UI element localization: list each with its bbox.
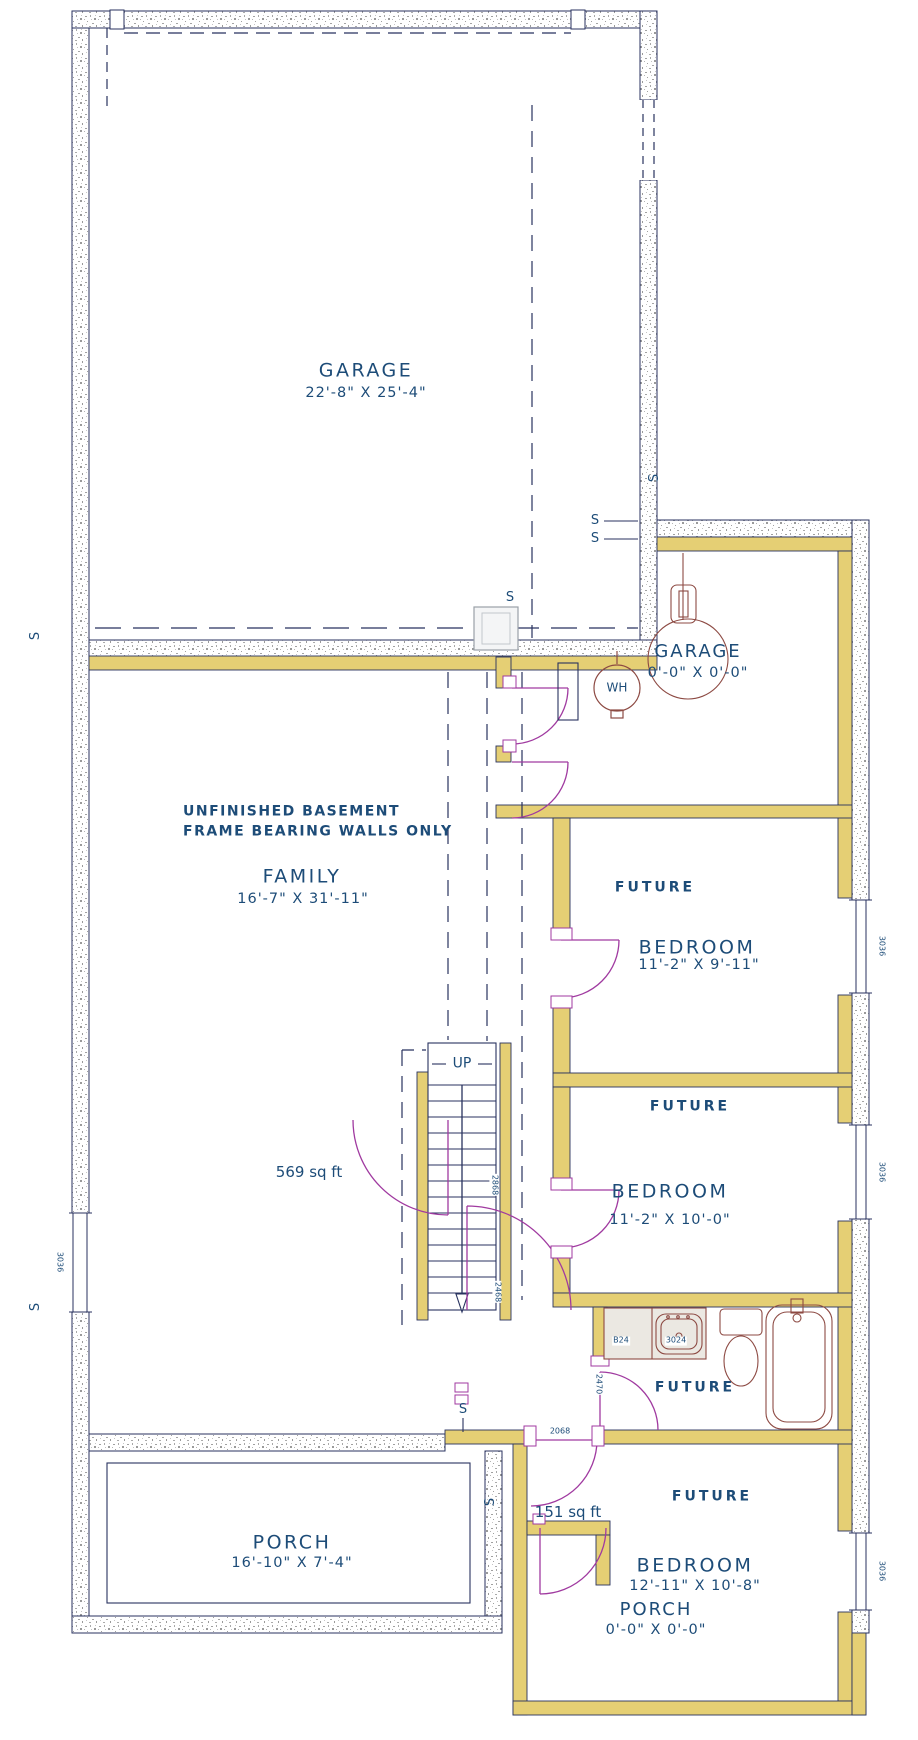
furnace bbox=[474, 607, 518, 650]
room-label-family: FAMILY bbox=[263, 867, 342, 888]
bathroom-fixtures bbox=[604, 1299, 832, 1429]
room-dims-bedroom2: 11'-2" X 10'-0" bbox=[609, 1213, 730, 1229]
floor-plan-drawing bbox=[0, 0, 918, 1740]
room-label-bedroom3: BEDROOM bbox=[637, 1556, 754, 1577]
switch-marker: S bbox=[648, 474, 662, 482]
room-label-garage: GARAGE bbox=[319, 361, 414, 382]
toilet bbox=[720, 1309, 762, 1386]
room-label-bedroom2: BEDROOM bbox=[612, 1182, 729, 1203]
room-dims-bedroom3: 12'-11" X 10'-8" bbox=[629, 1579, 761, 1595]
note-line-1: UNFINISHED BASEMENT bbox=[183, 804, 400, 819]
room-label-bedroom1-future: FUTURE bbox=[615, 880, 695, 895]
room-label-bath-future: FUTURE bbox=[655, 1380, 735, 1395]
door-size-code: 2470 bbox=[594, 1373, 603, 1395]
vanity-sink bbox=[604, 1308, 706, 1359]
room-dims-porch: 16'-10" X 7'-4" bbox=[231, 1556, 352, 1572]
vanity-cabinet-code: B24 bbox=[612, 1337, 630, 1346]
room-dims-family: 16'-7" X 31'-11" bbox=[237, 892, 369, 908]
window-size-code: 3036 bbox=[55, 1251, 64, 1273]
room-label-bedroom3-future: FUTURE bbox=[672, 1489, 752, 1504]
room-dims-garage-future: 0'-0" X 0'-0" bbox=[648, 666, 749, 682]
window-right-3 bbox=[849, 1533, 872, 1610]
area-label-hall: 151 sq ft bbox=[535, 1504, 601, 1521]
water-heater-label: WH bbox=[607, 681, 628, 694]
area-label-family: 569 sq ft bbox=[276, 1164, 342, 1181]
room-label-bedroom2-future: FUTURE bbox=[650, 1099, 730, 1114]
switch-marker: S bbox=[484, 1498, 498, 1506]
switch-marker: S bbox=[591, 532, 599, 546]
door-size-code: 2468 bbox=[493, 1281, 502, 1303]
switch-marker: S bbox=[506, 591, 514, 605]
window-right-1 bbox=[849, 900, 872, 993]
door-size-code: 2868 bbox=[490, 1174, 499, 1196]
stairs-up-label: UP bbox=[453, 1056, 472, 1071]
switch-marker: S bbox=[459, 1403, 467, 1417]
vanity-sink-code: 3024 bbox=[665, 1337, 687, 1346]
window-size-code: 3036 bbox=[877, 1161, 886, 1183]
floor-plan: GARAGE 22'-8" X 25'-4" GARAGE 0'-0" X 0'… bbox=[0, 0, 918, 1740]
concrete-walls bbox=[72, 11, 869, 1633]
switch-marker: S bbox=[591, 514, 599, 528]
room-label-porch-future: PORCH bbox=[620, 1600, 693, 1620]
room-dims-garage: 22'-8" X 25'-4" bbox=[305, 386, 426, 402]
bathtub bbox=[766, 1299, 832, 1429]
window-size-code: 3036 bbox=[877, 1560, 886, 1582]
window-right-2 bbox=[849, 1125, 872, 1219]
switch-marker: S bbox=[29, 632, 43, 640]
room-label-garage-future: GARAGE bbox=[654, 642, 741, 662]
switch-marker: S bbox=[29, 1303, 43, 1311]
room-label-bedroom1: BEDROOM bbox=[639, 938, 756, 959]
room-dims-bedroom1: 11'-2" X 9'-11" bbox=[638, 958, 759, 974]
note-line-2: FRAME BEARING WALLS ONLY bbox=[183, 824, 453, 839]
room-dims-porch-future: 0'-0" X 0'-0" bbox=[606, 1623, 707, 1639]
window-size-code: 3036 bbox=[877, 935, 886, 957]
door-size-code: 2068 bbox=[549, 1428, 571, 1437]
room-label-porch: PORCH bbox=[253, 1533, 332, 1554]
staircase bbox=[428, 1043, 496, 1312]
garage-door-jambs bbox=[110, 10, 658, 180]
window-left bbox=[69, 1213, 92, 1312]
